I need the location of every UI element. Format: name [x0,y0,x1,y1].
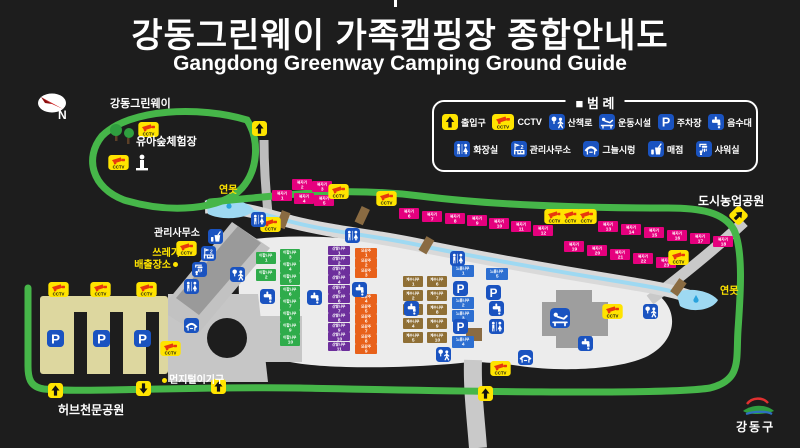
campsite-pink-13: 복자기13 [598,221,618,232]
campsite-name: 복자기 [516,222,526,226]
cctv-icon [136,282,157,297]
exercise-icon [550,308,570,328]
water-icon [489,301,504,316]
campsite-khaki-10: 계수나무10 [427,332,447,343]
map-base-art [0,0,800,448]
campsite-name: 계수나무 [406,319,419,323]
campsite-name: 복자기 [592,246,602,250]
campsite-pink-7: 복자기7 [422,211,442,222]
campsite-number: 8 [454,218,457,223]
campsite-name: 계수나무 [430,305,443,309]
campsite-pink-21: 복자기21 [610,249,630,260]
footer-logo-text: 강동구 [736,418,775,435]
campsite-number: 20 [594,250,599,255]
campsite-name: 복자기 [297,180,307,184]
toilet-icon [184,279,199,294]
campsite-name: 산딸나무 [332,323,345,327]
legend-item-store: 매점 [648,141,684,157]
campsite-number: 1 [281,195,284,200]
campsite-name: 계수나무 [430,291,443,295]
campsite-number: 4 [303,198,306,203]
cctv-icon [108,155,129,170]
map-label-pond-right: 연못 [720,286,738,298]
legend-item-label: 음수대 [727,116,752,129]
parking-icon [93,330,110,347]
campsite-blue-2: 느릅나무2 [452,297,474,309]
campsite-khaki-6: 계수나무6 [427,276,447,287]
campsite-name: 복자기 [538,226,548,230]
campsite-number: 9 [436,323,439,328]
campsite-green-10: 이팝나무10 [280,334,300,346]
campsite-number: 5 [496,274,499,279]
entrance-icon [48,383,63,398]
campsite-name: 산딸나무 [332,275,345,279]
campsite-number: 1 [265,258,268,263]
cctv-icon [602,304,623,319]
campsite-pink-1: 복자기1 [272,190,292,201]
cctv-icon [576,209,597,224]
campsite-number: 5 [323,200,326,205]
campsite-orange-9: 모감주9 [355,344,377,354]
campsite-khaki-9: 계수나무9 [427,318,447,329]
campsite-purple-7: 산딸나무7 [328,304,350,313]
campsite-number: 2 [265,275,268,280]
legend-item-label: 화장실 [473,143,498,156]
campsite-name: 산딸나무 [332,285,345,289]
campsite-name: 복자기 [472,216,482,220]
map-label-city-farm: 도시농업공원 [698,195,764,209]
water-icon [352,282,367,297]
entrance-icon [252,121,267,136]
campsite-green-5: 이팝나무5 [280,273,300,285]
legend-row-2: 화장실관리사무소그늘시렁매점샤워실 [442,141,752,157]
campsite-number: 5 [289,279,292,284]
forest-trees [110,124,134,144]
campsite-name: 산딸나무 [332,304,345,308]
legend-item-exercise: 운동시설 [599,114,651,130]
campsite-number: 7 [436,295,439,300]
legend-item-label: 산책로 [568,116,593,129]
campsite-number: 15 [651,232,656,237]
legend-item-cctv: CCTV [492,114,542,130]
campsite-name: 복자기 [450,214,460,218]
toilet-icon [345,228,360,243]
campsite-name: 산딸나무 [332,313,345,317]
legend: ■ 범 례 출입구CCTV산책로운동시설주차장음수대 화장실관리사무소그늘시렁매… [432,100,758,172]
campsite-blue-1: 느릅나무1 [452,265,474,277]
campsite-number: 13 [605,226,610,231]
campsite-number: 12 [540,230,545,235]
campsite-name: 복자기 [277,191,287,195]
legend-item-label: 운동시설 [618,116,651,129]
water-icon [708,114,724,130]
campsite-number: 6 [338,298,341,303]
north-entry-road [264,140,268,214]
walk-icon [436,347,451,362]
campsite-number: 8 [338,317,341,322]
statue [136,155,148,171]
campsite-name: 복자기 [603,222,613,226]
campsite-number: 2 [462,303,465,308]
legend-item-water: 음수대 [708,114,752,130]
shade-icon [518,350,533,365]
legend-row-1: 출입구CCTV산책로운동시설주차장음수대 [442,114,752,130]
compass-label: N [58,108,67,122]
water-icon [307,290,322,305]
campsite-number: 4 [412,323,415,328]
campsite-name: 복자기 [404,209,414,213]
legend-item-toilet: 화장실 [454,141,498,157]
campsite-number: 6 [408,213,411,218]
walk-icon [643,304,658,319]
legend-item-label: 주차장 [677,116,702,129]
campsite-number: 16 [674,235,679,240]
water-icon [578,336,593,351]
campsite-number: 10 [287,340,292,345]
campsite-name: 산딸나무 [332,294,345,298]
campsite-number: 9 [476,220,479,225]
campsite-pink-10: 복자기10 [489,218,509,229]
campsite-number: 9 [365,349,368,354]
cctv-icon [138,122,159,137]
legend-title: ■ 범 례 [566,93,625,112]
camping-ground-map: CCTV P [0,0,800,448]
campsite-orange-2: 모감주2 [355,258,377,268]
campsite-name: 복자기 [615,250,625,254]
campsite-number: 4 [289,267,292,272]
campsite-green-6: 이팝나무6 [280,286,300,298]
campsite-pink-17: 복자기17 [690,233,710,244]
campsite-name: 계수나무 [406,291,419,295]
top-tick [394,0,397,7]
parking-icon [47,330,64,347]
map-label-forest: 유아숲체험장 [136,136,197,149]
campsite-pink-6: 복자기6 [399,208,419,219]
cctv-icon [668,250,689,265]
legend-item-shower: 샤워실 [696,141,740,157]
campsite-number: 19 [571,246,576,251]
campsite-name: 복자기 [299,194,309,198]
campsite-number: 3 [365,273,368,278]
campsite-khaki-1: 계수나무1 [403,276,423,287]
parking-icon [486,285,501,300]
campsite-orange-1: 모감주1 [355,248,377,258]
cctv-icon [48,282,69,297]
campsite-number: 14 [628,229,633,234]
campsite-name: 복자기 [569,242,579,246]
campsite-number: 10 [336,336,341,341]
legend-item-shade: 그늘시렁 [583,141,635,157]
campsite-green-8: 이팝나무8 [280,310,300,322]
legend-item-parking: 주차장 [658,114,702,130]
campsite-number: 21 [617,254,622,259]
legend-item-office: 관리사무소 [511,141,571,157]
campsite-pink-8: 복자기8 [445,213,465,224]
office-icon [511,141,527,157]
walk-icon [230,267,245,282]
campsite-name: 복자기 [427,212,437,216]
campsite-orange-8: 모감주8 [355,334,377,344]
campsite-khaki-5: 계수나무5 [403,332,423,343]
campsite-pink-19: 복자기19 [564,241,584,252]
campsite-number: 7 [431,216,434,221]
entrance-icon [136,381,151,396]
campsite-name: 산딸나무 [332,332,345,336]
campsite-purple-6: 산딸나무6 [328,294,350,303]
campsite-pink-4: 복자기4 [294,193,314,204]
campsite-name: 산딸나무 [332,342,345,346]
cctv-icon [376,191,397,206]
campsite-number: 3 [289,255,292,260]
campsite-khaki-4: 계수나무4 [403,318,423,329]
campsite-name: 계수나무 [406,277,419,281]
water-icon [260,289,275,304]
campsite-name: 산딸나무 [332,266,345,270]
campsite-pink-2: 복자기2 [292,179,312,190]
campsite-number: 22 [640,258,645,263]
map-label-greenway: 강동그린웨이 [110,98,171,111]
campsite-number: 9 [289,328,292,333]
campsite-pink-9: 복자기9 [467,215,487,226]
campsite-number: 7 [289,304,292,309]
campsite-purple-4: 산딸나무4 [328,275,350,284]
cctv-icon [160,341,181,356]
campsite-number: 1 [412,281,415,286]
parking-icon [134,330,151,347]
toilet-icon [489,319,504,334]
campsite-pink-16: 복자기16 [667,230,687,241]
parking-icon [453,281,468,296]
shade-icon [184,318,199,333]
campsite-pink-11: 복자기11 [511,221,531,232]
campsite-green-4: 이팝나무4 [280,261,300,273]
campsite-number: 10 [434,337,439,342]
parking-icon [453,319,468,334]
campsite-name: 복자기 [638,254,648,258]
campsite-number: 1 [462,271,465,276]
map-label-trash: 쓰레기 배출장소 [126,248,180,271]
campsite-blue-4: 느릅나무4 [452,336,474,348]
campsite-name: 계수나무 [430,277,443,281]
campsite-purple-8: 산딸나무8 [328,313,350,322]
campsite-name: 계수나무 [406,333,419,337]
legend-item-label: CCTV [517,117,542,127]
campsite-orange-5: 모감주5 [355,304,377,314]
campsite-name: 산딸나무 [332,256,345,260]
legend-item-entrance: 출입구 [442,114,486,130]
toilet-icon [251,212,266,227]
campsite-purple-11: 산딸나무11 [328,342,350,351]
toilet-icon [450,251,465,266]
campsite-pink-22: 복자기22 [633,253,653,264]
walk-icon [549,114,565,130]
campsite-purple-5: 산딸나무5 [328,285,350,294]
campsite-name: 복자기 [695,234,705,238]
shade-icon [583,141,599,157]
campsite-number: 8 [436,309,439,314]
campsite-number: 2 [338,260,341,265]
campsite-name: 복자기 [494,219,504,223]
entrance-icon [442,114,458,130]
campsite-blue-5: 느릅나무5 [486,268,508,280]
campsite-khaki-8: 계수나무8 [427,304,447,315]
campsite-green-7: 이팝나무7 [280,298,300,310]
campsite-green-9: 이팝나무9 [280,322,300,334]
legend-item-label: 출입구 [461,116,486,129]
campsite-number: 11 [518,226,523,231]
campsite-green-2: 이팝나무2 [256,269,276,281]
campsite-orange-6: 모감주6 [355,314,377,324]
exercise-icon [599,114,615,130]
campsite-number: 17 [697,238,702,243]
legend-item-label: 매점 [667,143,684,156]
campsite-number: 2 [301,184,304,189]
campsite-name: 복자기 [317,182,327,186]
campsite-khaki-7: 계수나무7 [427,290,447,301]
campsite-pink-20: 복자기20 [587,245,607,256]
campsite-number: 18 [720,241,725,246]
campsite-number: 4 [462,342,465,347]
shower-icon [192,262,207,277]
campsite-number: 11 [336,346,341,351]
campsite-purple-9: 산딸나무9 [328,323,350,332]
map-label-herb: 허브천문공원 [58,404,124,418]
campsite-pink-18: 복자기18 [713,236,733,247]
campsite-name: 계수나무 [430,333,443,337]
campsite-pink-14: 복자기14 [621,224,641,235]
entrance-icon [478,386,493,401]
store-icon [648,141,664,157]
campsite-number: 4 [338,279,341,284]
campsite-purple-1: 산딸나무1 [328,246,350,255]
campsite-purple-3: 산딸나무3 [328,266,350,275]
campsite-orange-3: 모감주3 [355,268,377,278]
shower-icon [696,141,712,157]
toilet-icon [454,141,470,157]
cctv-icon [328,184,349,199]
cctv-icon [492,114,514,130]
campsite-orange-7: 모감주7 [355,324,377,334]
gangdong-logo [743,399,774,414]
campsite-purple-2: 산딸나무2 [328,256,350,265]
campsite-pink-15: 복자기15 [644,227,664,238]
map-label-office: 관리사무소 [154,228,200,240]
campsite-purple-10: 산딸나무10 [328,332,350,341]
south-road [473,360,478,448]
parking-icon [658,114,674,130]
campsite-number: 8 [289,316,292,321]
campsite-green-1: 이팝나무1 [256,252,276,264]
cctv-icon [490,361,511,376]
campsite-number: 6 [436,281,439,286]
legend-item-walk: 산책로 [549,114,593,130]
campsite-name: 복자기 [649,228,659,232]
campsite-number: 1 [338,250,341,255]
roundabout-island [207,318,247,358]
campsite-number: 3 [321,186,324,191]
store-icon [208,229,223,244]
campsite-name: 복자기 [626,225,636,229]
campsite-pink-12: 복자기12 [533,225,553,236]
map-label-dust: 먼지털이기구 [160,375,224,387]
office-icon [201,246,216,261]
legend-item-label: 그늘시렁 [602,143,635,156]
campsite-name: 계수나무 [430,319,443,323]
campsite-number: 10 [496,223,501,228]
cctv-icon [90,282,111,297]
campsite-green-3: 이팝나무3 [280,249,300,261]
water-icon [404,301,419,316]
campsite-number: 5 [412,337,415,342]
campsite-khaki-2: 계수나무2 [403,290,423,301]
map-label-pond-left: 연못 [219,185,237,197]
campsite-number: 6 [289,292,292,297]
legend-item-label: 샤워실 [715,143,740,156]
campsite-name: 산딸나무 [332,246,345,250]
legend-item-label: 관리사무소 [530,143,571,156]
campsite-name: 복자기 [672,231,682,235]
campsite-name: 복자기 [718,237,728,241]
campsite-number: 2 [412,295,415,300]
